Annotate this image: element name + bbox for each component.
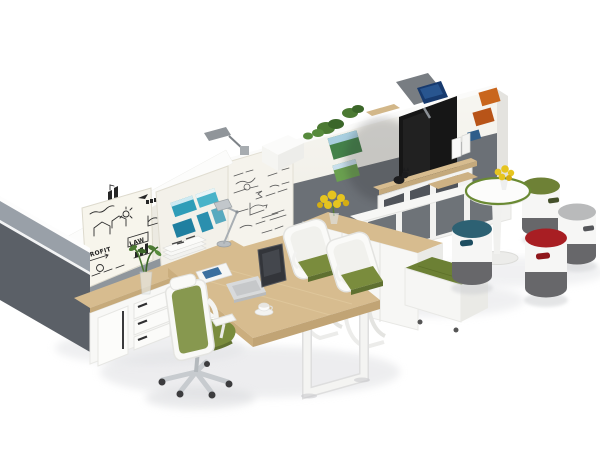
table-column <box>492 203 502 254</box>
caster <box>204 361 210 367</box>
laptop-screen-glow <box>262 249 281 277</box>
shelf-box-white <box>452 137 461 159</box>
bench-caster <box>454 328 459 333</box>
stool-top-gray <box>558 204 596 221</box>
acoustic-end-panel <box>0 196 90 352</box>
stool-red <box>524 229 568 308</box>
render-canvas: PROFIT LAW <box>0 0 600 450</box>
caster <box>226 381 233 388</box>
shelf-box-white <box>462 133 470 155</box>
bench-caster <box>418 320 423 325</box>
stool-top-red <box>525 229 567 248</box>
plant-vase <box>140 272 152 294</box>
table-top <box>466 178 530 204</box>
caster <box>177 391 184 398</box>
stool-top-blue <box>452 220 492 238</box>
wall-lamp-head <box>204 127 231 141</box>
caster <box>209 392 216 399</box>
caster <box>159 379 166 386</box>
office-render: PROFIT LAW <box>0 0 600 450</box>
wall-lamp-mount <box>240 146 249 155</box>
